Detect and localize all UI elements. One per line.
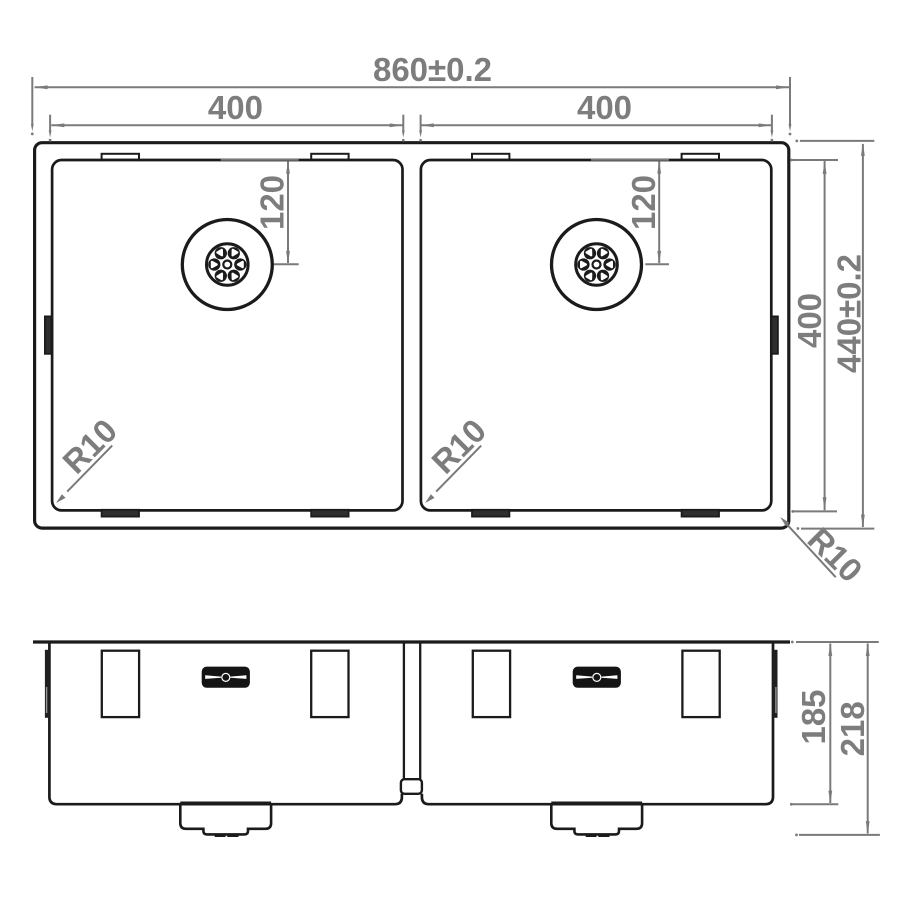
svg-text:440±0.2: 440±0.2 xyxy=(830,254,867,373)
svg-text:R10: R10 xyxy=(801,520,870,589)
svg-text:120: 120 xyxy=(625,175,662,230)
svg-text:400: 400 xyxy=(791,293,828,348)
svg-text:400: 400 xyxy=(577,89,632,126)
svg-text:120: 120 xyxy=(254,175,291,230)
svg-text:860±0.2: 860±0.2 xyxy=(373,51,492,88)
svg-text:R10: R10 xyxy=(424,412,493,481)
svg-text:400: 400 xyxy=(208,89,263,126)
svg-text:185: 185 xyxy=(795,689,832,744)
svg-text:218: 218 xyxy=(834,701,871,756)
svg-text:R10: R10 xyxy=(55,412,124,481)
